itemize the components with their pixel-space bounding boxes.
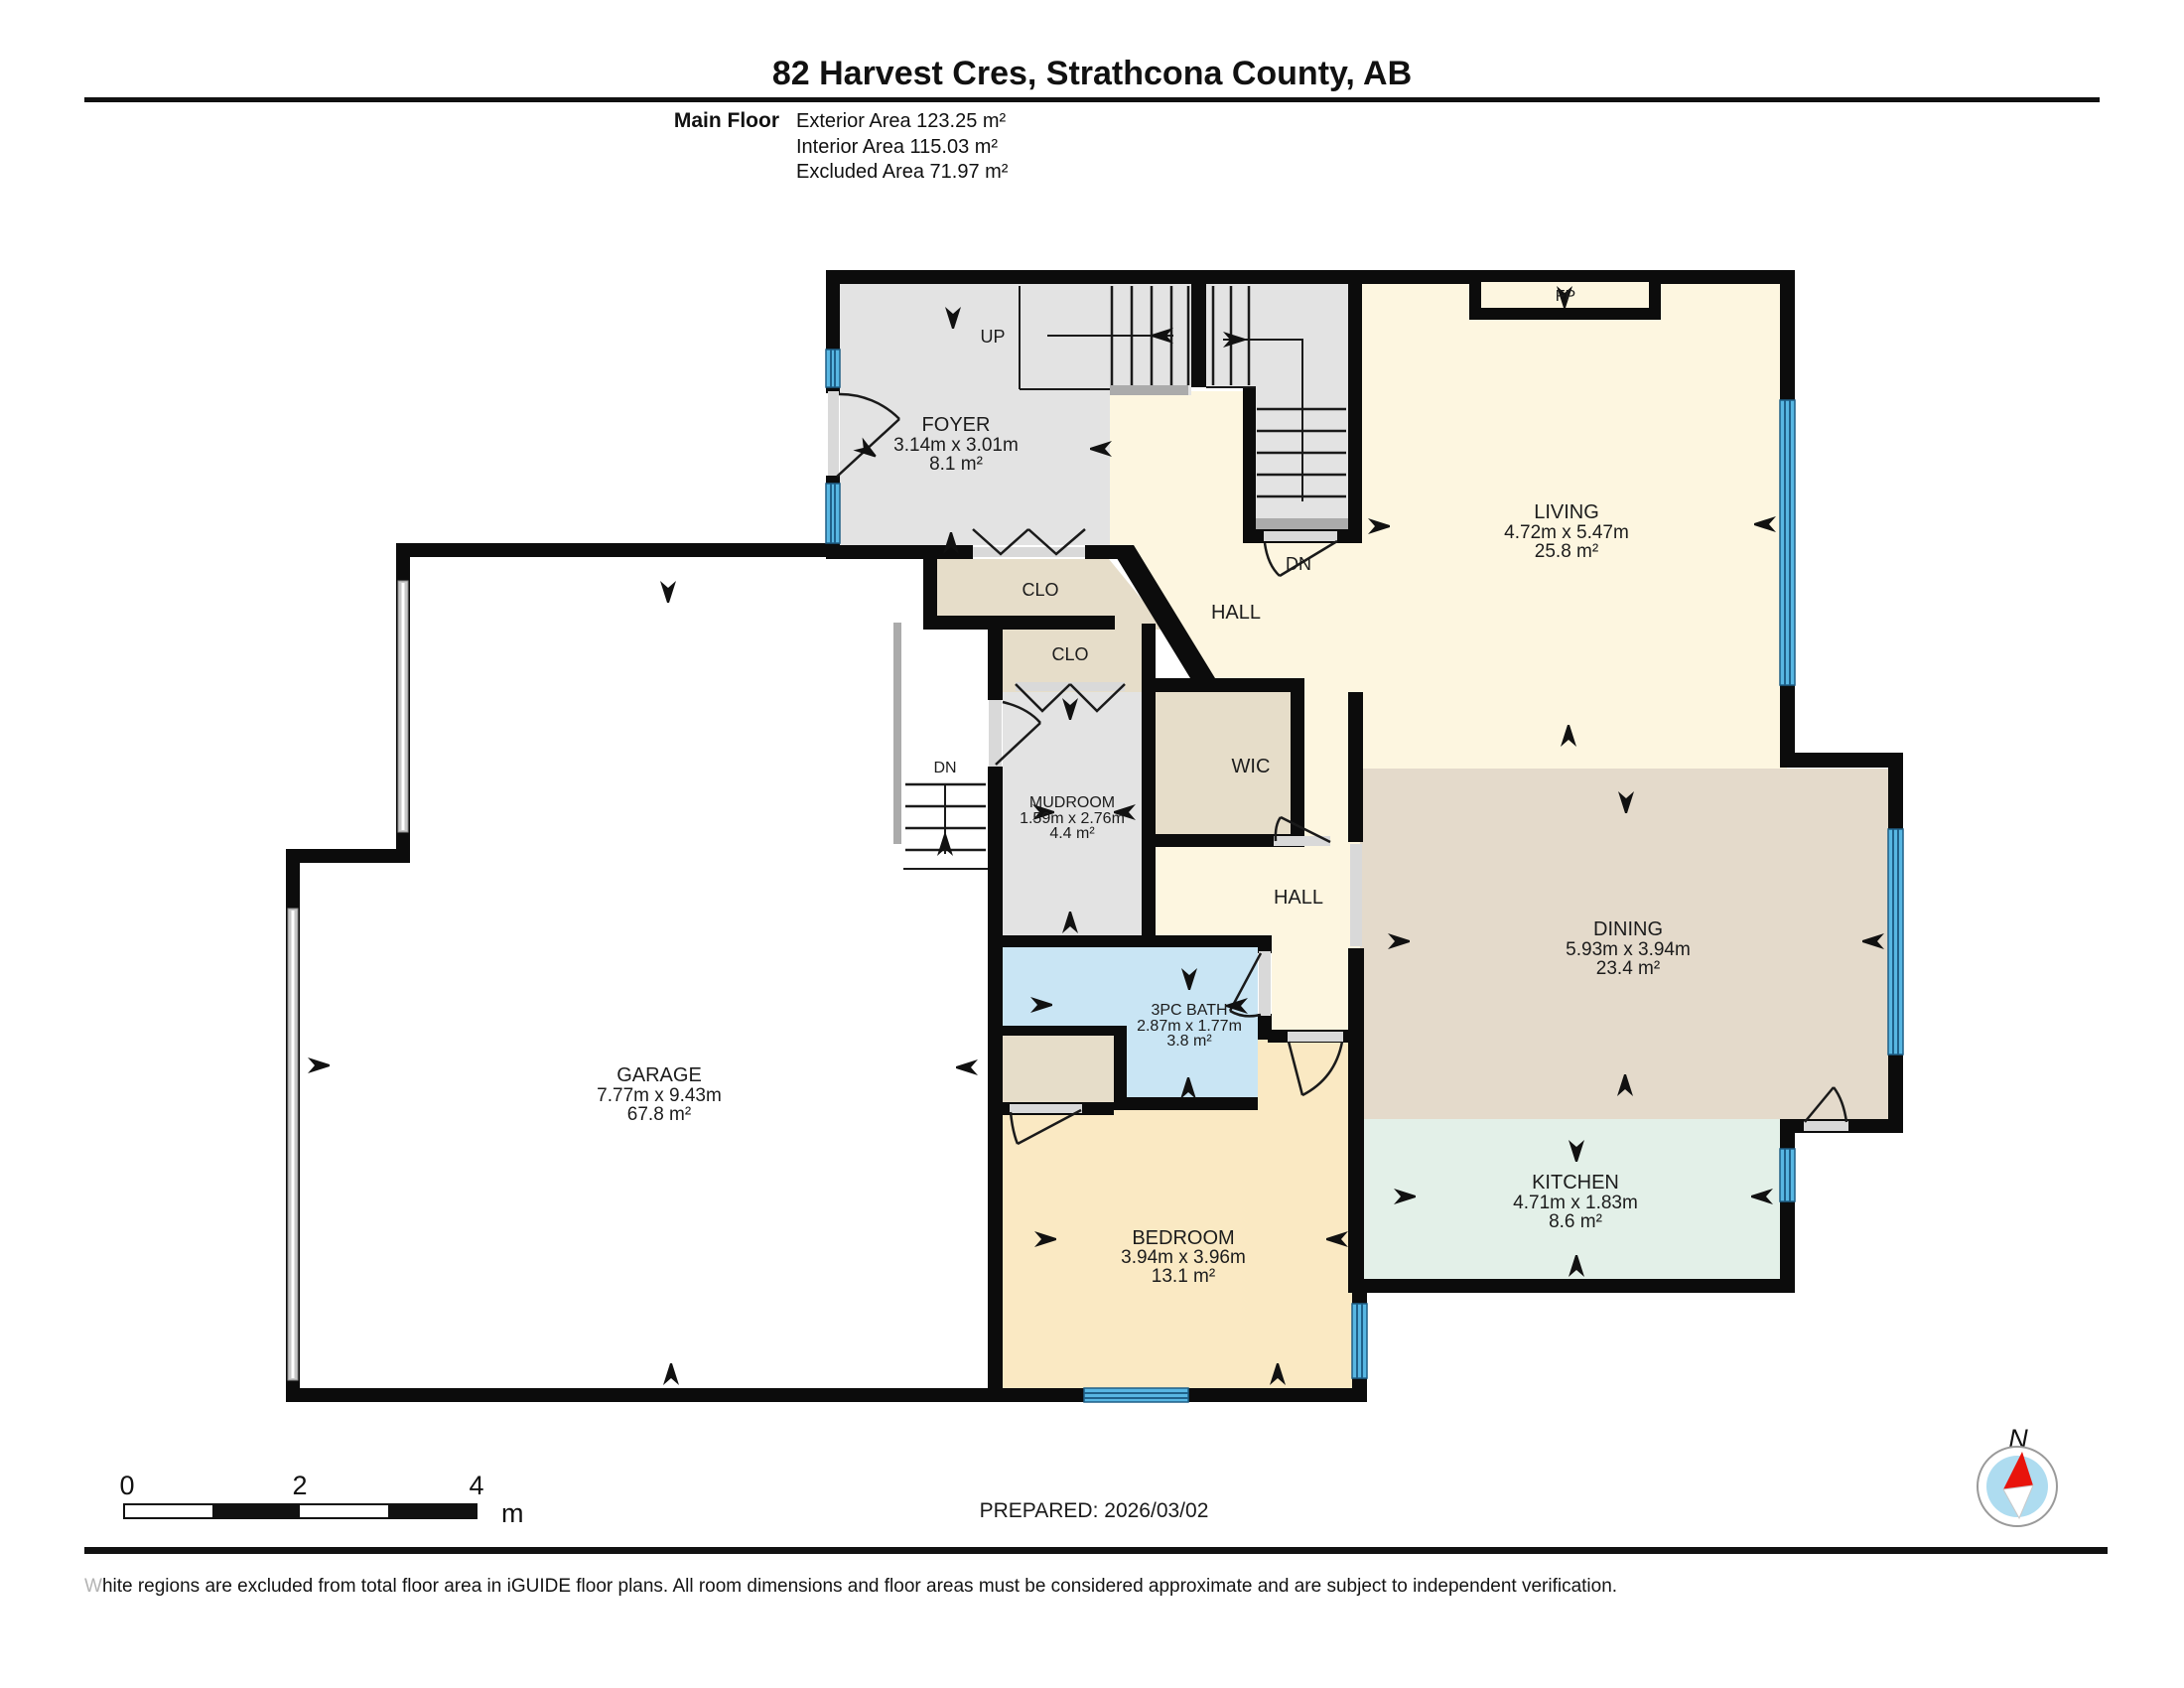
window-foyer-sidelight-1 [826, 350, 840, 387]
window-bedroom-bottom [1084, 1388, 1188, 1402]
dining-area: 23.4 m² [1596, 958, 1660, 979]
mudroom-name: MUDROOM [1029, 794, 1115, 811]
window-bedroom-right [1352, 1304, 1367, 1378]
label-garage: GARAGE 7.77m x 9.43m 67.8 m² [597, 1064, 722, 1125]
label-hall-upper: HALL [1211, 602, 1261, 624]
footer-rule [84, 1547, 2108, 1554]
floorplan-canvas: 82 Harvest Cres, Strathcona County, AB M… [0, 0, 2184, 1688]
scale-bar-seg2 [388, 1504, 477, 1518]
foyer-name: FOYER [922, 414, 991, 436]
stat-exterior-area: Exterior Area 123.25 m² [796, 110, 1007, 132]
bedroom-area: 13.1 m² [1152, 1266, 1215, 1287]
kitchen-name: KITCHEN [1532, 1172, 1619, 1194]
disclaimer: White regions are excluded from total fl… [84, 1576, 1617, 1597]
label-closet1: CLO [1022, 580, 1058, 600]
garage-area: 67.8 m² [627, 1104, 691, 1125]
floor-label: Main Floor [674, 109, 779, 132]
label-hall-lower: HALL [1274, 887, 1323, 909]
foyer-dims: 3.14m x 3.01m [893, 435, 1019, 456]
stat-interior-area: Interior Area 115.03 m² [796, 136, 998, 158]
compass: N [1978, 1424, 2057, 1526]
living-area: 25.8 m² [1535, 541, 1598, 562]
label-wic: WIC [1232, 756, 1271, 777]
bath-name: 3PC BATH [1151, 1002, 1227, 1019]
bedroom-dims: 3.94m x 3.96m [1121, 1247, 1246, 1268]
label-up: UP [980, 327, 1005, 347]
window-kitchen [1780, 1149, 1795, 1201]
bedroom-name: BEDROOM [1132, 1227, 1234, 1249]
header: 82 Harvest Cres, Strathcona County, AB M… [84, 55, 2100, 183]
scale-tick-2: 2 [292, 1471, 307, 1500]
dining-dims: 5.93m x 3.94m [1566, 939, 1691, 960]
scale-unit: m [501, 1498, 524, 1528]
scale-tick-4: 4 [469, 1471, 483, 1500]
living-dims: 4.72m x 5.47m [1504, 522, 1629, 543]
living-name: LIVING [1534, 501, 1599, 523]
header-rule [84, 97, 2100, 102]
dining-name: DINING [1593, 918, 1663, 940]
scale-bar-seg1 [212, 1504, 300, 1518]
stat-excluded-area: Excluded Area 71.97 m² [796, 161, 1009, 183]
window-living [1780, 400, 1795, 685]
scale-bar: 0 2 4 m [119, 1471, 523, 1528]
room-wic-floor [1154, 692, 1304, 847]
stair-basement-rail [893, 623, 901, 844]
foyer-area: 8.1 m² [929, 454, 983, 475]
disclaimer-lead: W [84, 1576, 102, 1597]
disclaimer-rest: hite regions are excluded from total flo… [102, 1576, 1617, 1597]
kitchen-area: 8.6 m² [1549, 1211, 1602, 1232]
stair-up-landing [1110, 385, 1188, 395]
scale-tick-0: 0 [119, 1471, 134, 1500]
stair-dn-landing [1256, 518, 1348, 529]
mudroom-area: 4.4 m² [1049, 825, 1095, 842]
label-fireplace: FP [1556, 288, 1575, 305]
bath-area: 3.8 m² [1166, 1033, 1212, 1050]
garage-doors [288, 581, 408, 1380]
label-dn-main: DN [1286, 554, 1311, 574]
room-bedroom-closet-floor [1001, 1033, 1114, 1105]
window-dining [1888, 829, 1903, 1055]
label-dn-basement: DN [933, 760, 956, 776]
prepared-date: PREPARED: 2026/03/02 [980, 1499, 1209, 1522]
page-title: 82 Harvest Cres, Strathcona County, AB [772, 55, 1412, 92]
window-foyer-sidelight-2 [826, 484, 840, 543]
label-closet2: CLO [1051, 644, 1088, 664]
kitchen-dims: 4.71m x 1.83m [1513, 1193, 1638, 1213]
garage-dims: 7.77m x 9.43m [597, 1085, 722, 1106]
garage-name: GARAGE [616, 1064, 702, 1086]
